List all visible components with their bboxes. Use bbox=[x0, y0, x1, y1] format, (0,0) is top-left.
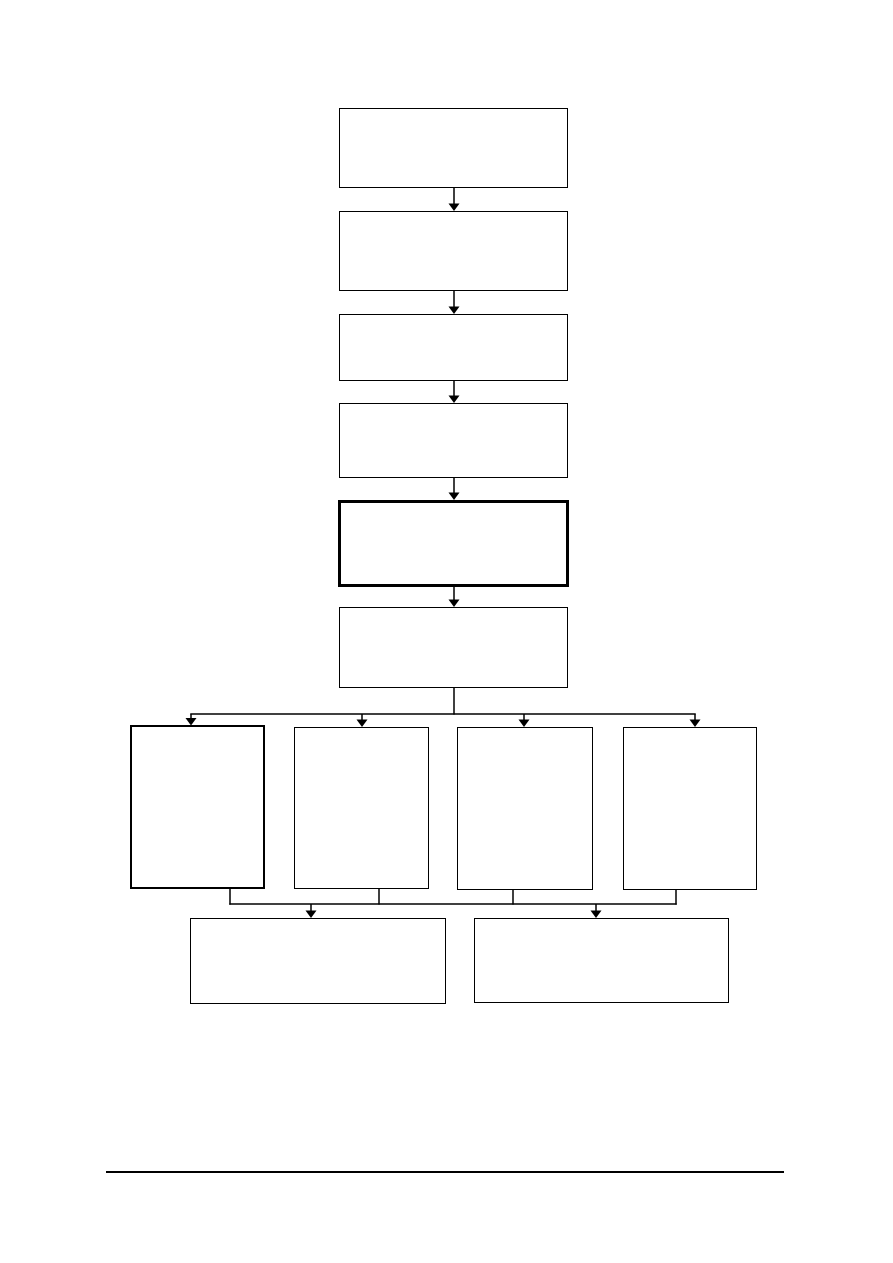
flowchart-box-step-3 bbox=[339, 314, 568, 381]
flowchart-box-step-5 bbox=[338, 500, 569, 587]
arrow-step5-step6 bbox=[449, 587, 460, 607]
footer-divider-rule bbox=[106, 1171, 784, 1173]
flowchart-box-merge-1 bbox=[190, 918, 446, 1004]
flowchart-box-branch-3 bbox=[457, 727, 593, 890]
arrow-merge1 bbox=[306, 904, 317, 918]
arrow-step3-step4 bbox=[449, 381, 460, 403]
document-page bbox=[0, 0, 893, 1263]
flowchart-box-branch-1 bbox=[130, 725, 265, 889]
flowchart-box-branch-2 bbox=[294, 727, 429, 889]
flowchart-box-step-4 bbox=[339, 403, 568, 478]
arrow-step4-step5 bbox=[449, 478, 460, 500]
arrow-step1-step2 bbox=[449, 188, 460, 211]
flowchart-box-step-2 bbox=[339, 211, 568, 291]
arrow-step2-step3 bbox=[449, 291, 460, 314]
arrow-step6-branch2 bbox=[357, 714, 368, 727]
flowchart-box-step-6 bbox=[339, 607, 568, 688]
flowchart-box-step-1 bbox=[339, 108, 568, 188]
flowchart-box-branch-4 bbox=[623, 727, 757, 890]
arrow-merge2 bbox=[591, 904, 602, 918]
arrow-step6-branch3 bbox=[519, 714, 530, 727]
flowchart-box-merge-2 bbox=[474, 918, 729, 1003]
arrow-step6-branch4 bbox=[690, 714, 701, 727]
arrow-step6-branch1 bbox=[186, 714, 197, 726]
